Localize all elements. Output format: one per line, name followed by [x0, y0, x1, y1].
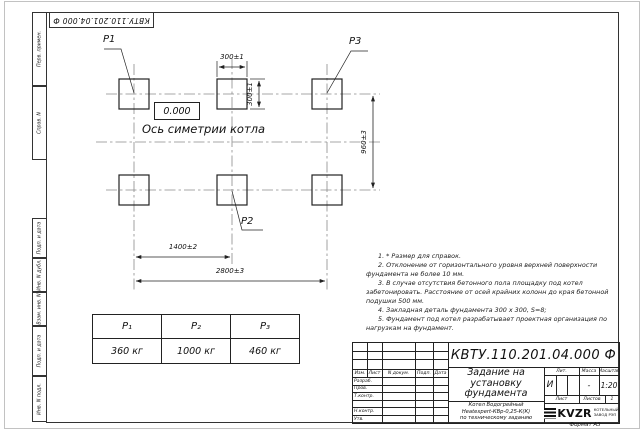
- loads-value-p3: 460 кг: [231, 339, 300, 364]
- company-line-2: ЗАВОД РЭП: [594, 413, 619, 418]
- company-logo-cell: KVZR КОТЕЛЬНЫЙ ЗАВОД РЭП: [544, 403, 619, 423]
- dim-total-width: 2800±3: [204, 267, 256, 275]
- load-point-label-p3: P3: [349, 36, 361, 47]
- grid-line: [556, 375, 557, 395]
- dim-row-spacing: 960±3: [360, 122, 372, 162]
- row-utv: Утв.: [354, 415, 382, 423]
- document-designation: КВТУ.110.201.04.000 Ф: [448, 343, 619, 367]
- lit-value: И: [544, 375, 556, 395]
- kvzr-logo-text: KVZR: [557, 407, 591, 420]
- mass-header: Масса: [579, 367, 599, 375]
- loads-value-p2: 1000 кг: [162, 339, 231, 364]
- title-block: Изм. Лист N докум. Подп. Дата Разраб. Пр…: [352, 342, 620, 424]
- lit-header: Лит.: [544, 367, 579, 375]
- load-point-label-p1: P1: [103, 34, 115, 45]
- note-3: 3. В случае отсутствия бетонного пола пл…: [366, 279, 622, 306]
- grid-line: [353, 351, 448, 352]
- company-name: КОТЕЛЬНЫЙ ЗАВОД РЭП: [594, 408, 619, 418]
- elevation-mark: 0.000: [154, 102, 200, 120]
- note-2: 2. Отклонение от горизонтального уровня …: [366, 261, 622, 279]
- scale-header: Масштаб: [599, 367, 619, 375]
- grid-line: [415, 343, 416, 423]
- row-t-kontr: Т.контр.: [354, 392, 382, 400]
- scale-value: 1:20: [599, 375, 619, 395]
- loads-table-header-row: P₁ P₂ P₃: [93, 315, 300, 339]
- loads-table-value-row: 360 кг 1000 кг 460 кг: [93, 339, 300, 364]
- loads-header-p1: P₁: [93, 315, 162, 339]
- product-line-2: Heatexpert-КВр-0,25-К(К): [460, 409, 532, 416]
- note-4: 4. Закладная деталь фундамента 300 х 300…: [366, 306, 622, 315]
- col-n-dokum: N докум.: [382, 369, 415, 377]
- product-description: Котел Водогрейный Heatexpert-КВр-0,25-К(…: [448, 401, 544, 423]
- col-podp: Подп.: [415, 369, 433, 377]
- grid-line: [567, 375, 568, 395]
- note-1: 1. * Размер для справок.: [366, 252, 622, 261]
- sheets-value: 1: [605, 395, 619, 403]
- symmetry-axis-label: Ось симетрии котла: [142, 122, 265, 136]
- grid-line: [382, 343, 383, 423]
- sheets-label: Листов: [579, 395, 605, 403]
- col-list: Лист: [367, 369, 382, 377]
- grid-line: [353, 359, 448, 360]
- foundation-pads: [119, 79, 342, 205]
- leader-lines: [104, 49, 368, 230]
- mass-value: -: [579, 375, 599, 395]
- grid-line: [353, 400, 448, 401]
- grid-line: [433, 343, 434, 423]
- load-point-label-p2: P2: [241, 216, 253, 227]
- row-razrab: Разраб.: [354, 377, 382, 385]
- product-line-1: Котел Водогрейный: [460, 402, 532, 409]
- drawing-sheet: КВТУ.110.201.04.000 Ф Перв. примен. Спра…: [0, 0, 644, 430]
- dim-pad-height: 300±1: [246, 76, 258, 112]
- product-line-3: по техническому заданию: [460, 415, 532, 422]
- row-prov: Пров.: [354, 385, 382, 392]
- note-5: 5. Фундамент под котел разрабатывает про…: [366, 315, 622, 333]
- kvzr-logo-icon: [544, 408, 556, 419]
- document-name: Задание на установку фундамента: [450, 367, 542, 401]
- dim-pad-width: 300±1: [206, 53, 258, 61]
- loads-table: P₁ P₂ P₃ 360 кг 1000 кг 460 кг: [92, 314, 300, 364]
- sheet-label: Лист: [544, 395, 579, 403]
- loads-value-p1: 360 кг: [93, 339, 162, 364]
- loads-header-p3: P₃: [231, 315, 300, 339]
- row-n-kontr: Н.контр.: [354, 407, 382, 415]
- notes-block: 1. * Размер для справок. 2. Отклонение о…: [366, 252, 622, 333]
- format-label: Формат А3: [552, 422, 618, 428]
- col-izm: Изм.: [353, 369, 367, 377]
- dim-col-spacing: 1400±2: [157, 243, 209, 251]
- col-data: Дата: [433, 369, 448, 377]
- loads-header-p2: P₂: [162, 315, 231, 339]
